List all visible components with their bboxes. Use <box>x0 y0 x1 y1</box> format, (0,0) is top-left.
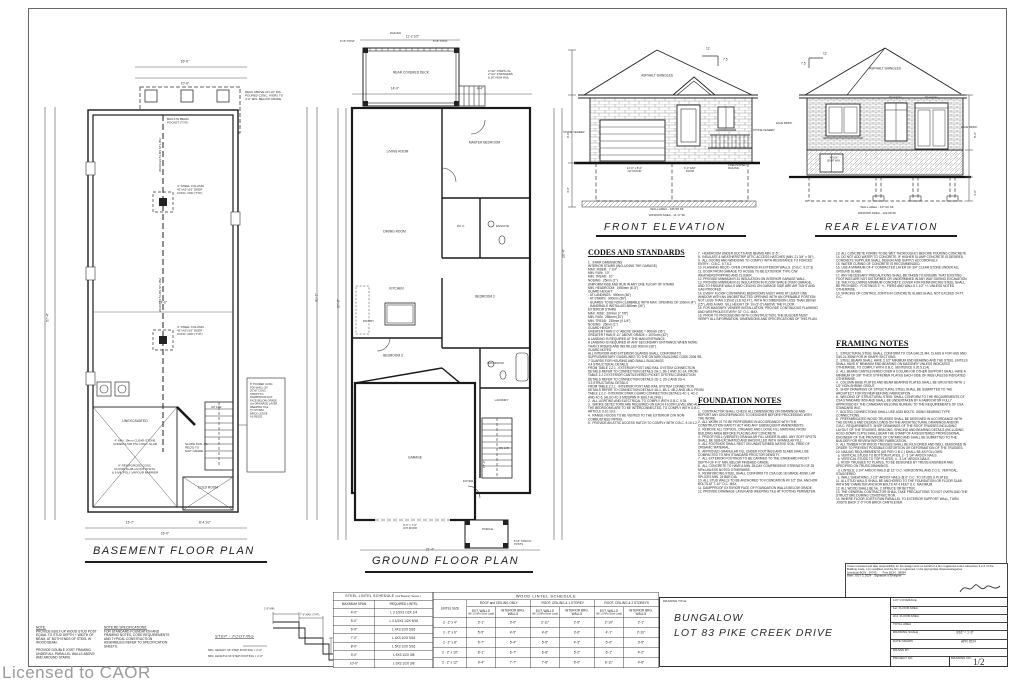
label-deck-steps: 2"x10" STEPS c/w 2"x10" STRINGERS & 36" … <box>488 70 548 80</box>
room-label-bath: BATHROOM <box>473 362 518 365</box>
basement-note-beam-pocket: BUILT-IN BEAM POCKET (TYP.) <box>167 118 222 125</box>
basement-label-up: UP 14R <box>211 406 221 410</box>
steel-table-subtitle: ( For Masonry Veneer ) <box>395 595 421 598</box>
wood-col-size: LINTEL SIZE <box>433 600 467 618</box>
table-row: 2 - 2" x 4"3'-1"3'-0"2'-11"2'-5"2'-10"2'… <box>433 618 659 628</box>
room-label-wic: W.I.C. <box>446 225 476 229</box>
cell-lintel: L 3 1/2X3 1/2X 1/4 <box>375 608 433 617</box>
date-drawn-value: APR 2024 <box>961 640 976 644</box>
rear-label-shingles: ASPHALT SHINGLES <box>850 67 920 71</box>
title-block: DRAWING TITLE BUNGALOW LOT 83 PIKE CREEK… <box>659 597 1008 667</box>
framing-notes-heading: FRAMING NOTES <box>836 338 909 348</box>
cell: 4'-2" <box>623 648 659 658</box>
rear-label-transom-2: TRANSOM <box>925 97 938 100</box>
row-total-area: TOTAL AREA <box>893 623 911 627</box>
cell: 4'-5" <box>495 628 530 638</box>
steel-col-span: MAXIMUM SPAN <box>333 600 375 608</box>
stamp-date-signature: Date: JULY 3, 2024 Signature of Designer… <box>847 575 1004 578</box>
step-footing-dim-1: 2'-0" MIN. <box>264 608 275 611</box>
drawing-sheet: { "sheet": { "licensed_to": "Licensed to… <box>0 0 1024 682</box>
wood-group-3: ROOF, CEILING & 2 STOREYS <box>595 600 659 607</box>
steel-lintel-table: STEEL LINTEL SCHEDULE ( For Masonry Vene… <box>333 592 433 668</box>
cell: 7'-7" <box>495 658 530 668</box>
cell: 9'-4" <box>467 658 496 668</box>
drawing-title-line1: BUNGALOW <box>674 612 743 624</box>
cell-size: 2 - 2" x 4" <box>433 618 467 628</box>
cell-lintel: L 4X3 1/2X 5/16 <box>375 625 433 634</box>
basement-side-note: 8" POURED CONC. FDN WALL ON 20"x8" CONC.… <box>250 383 284 419</box>
wood-lintel-table: WOOD LINTEL SCHEDULE LINTEL SIZE ROOF an… <box>433 592 659 668</box>
table-row: 2 - 2" x 6"5'-5"4'-5"4'-6"3'-6"4'-1"2'-1… <box>433 628 659 638</box>
rear-label-cladding-left: FACE BRICK <box>776 122 806 125</box>
front-elevation-title: FRONT ELEVATION <box>604 222 726 233</box>
note-body: PROVIDE BUILT-UP WOOD STUD POST EQUAL TO… <box>36 630 100 660</box>
rear-label-cladding-right: FACE BRICK <box>961 126 991 129</box>
row-first-floor-area: 1st. FLOOR AREA <box>893 607 918 611</box>
label-porch-posts: 6"x6" STRUCT. POSTS <box>514 540 559 546</box>
drawing-number-value: 1/2 <box>973 657 985 668</box>
basement-note-steel-column-1: 4" STEEL COLUMN 42"x42"x16" DEEP CONC. P… <box>177 185 242 196</box>
cell-size: 2 - 2" x 10" <box>433 648 467 658</box>
cell: 4'-8" <box>623 658 659 668</box>
rear-pitch-run: 12 <box>823 52 827 56</box>
basement-dim-top: 16'-0" <box>155 60 215 64</box>
codes-foundation-section: 7. HEADROOM UNDER DUCTS AND BEAMS MIN. 6… <box>698 252 818 564</box>
ground-dim-deck: 11'-2 1/2" <box>380 35 445 39</box>
basement-note-steel-column-2: 4" STEEL COLUMN 42"x42"x16" DEEP CONC. P… <box>177 326 242 337</box>
basement-label-cold-room: COLD ROOM <box>178 486 238 490</box>
cell-lintel: L 6X3 1/2X 3/8 <box>375 659 433 668</box>
cell-size: 2 - 2" x 12" <box>433 658 467 668</box>
room-label-garage: GARAGE <box>385 456 445 460</box>
foundation-notes-column: 1. CONTRACTOR SHALL CHECK ALL DIMENSIONS… <box>698 410 818 494</box>
front-label-entry-door: 3'-0" ENT. DOOR <box>670 167 710 173</box>
basement-beam-label-1: W310X22.5 LBS STL BM <box>159 138 163 172</box>
rear-label-transom-1: TRANSOM <box>889 97 902 100</box>
row-drawing-scale: DRAWING SCALE <box>893 631 918 635</box>
step-footing-note-1: MIN. HEIGHT OF STEP FOOTING = 2'-0" <box>208 649 262 652</box>
front-pitch-rise: 7.5 <box>723 58 728 62</box>
front-label-shingles: ASPHALT SHINGLES <box>622 74 692 78</box>
rear-elevation: ASPHALT SHINGLES 12 7.5 FACE BRICK FACE … <box>775 38 980 243</box>
sub-int-walls: INTERIOR BRG. WALLS <box>559 607 594 618</box>
ground-dim-top1: 14'-0" <box>365 87 425 91</box>
table-row: 7'-0"L 4X3 1/2X 5/16 <box>333 634 433 643</box>
front-window-area: WINDOW AREA - 11.17 SF <box>627 214 707 218</box>
step-footing-dim-2: 7'-0" MAX. (TYP.) <box>300 614 319 617</box>
drawing-title-line2: LOT 83 PIKE CREEK DRIVE <box>674 627 833 639</box>
cell: 3'-5" <box>623 638 659 648</box>
cell-size: 2 - 2" x 8" <box>433 638 467 648</box>
basement-label-unexcavated: UNEXCAVATED <box>95 420 175 424</box>
sub-ext-note: (W/ 1.0 kPa Snow Load) <box>532 613 558 616</box>
table-row: 8'-0"L 5X3 1/2X 5/16 <box>333 642 433 651</box>
cell: 6'-7" <box>495 648 530 658</box>
ground-dim-garage: 17'-4" <box>483 460 487 468</box>
cell-lintel: L 5X3 1/2X 3/8 <box>375 651 433 660</box>
step-footing-detail: STEP - FOOTING MIN. HEIGHT OF STEP FOOTI… <box>205 608 340 668</box>
room-label-porch: PORCH <box>465 528 510 532</box>
cell: 5'-5" <box>531 638 560 648</box>
table-row: 10'-0"L 6X3 1/2X 3/8 <box>333 659 433 668</box>
cell-span: 6'-0" <box>333 625 375 634</box>
room-label-laundry: LAUNDRY <box>479 399 524 402</box>
room-label-pantry: PANTRY <box>351 320 386 323</box>
cell: 5'-2" <box>559 648 594 658</box>
framing-notes-section: 13. ALL CONCRETE FORMS TO BE WET THOROUG… <box>836 252 968 564</box>
basement-beam-label-2: W310X22.5 LBS STL BM <box>159 278 163 312</box>
license-watermark: Licensed to CAOR <box>2 663 151 683</box>
drawing-title-label: DRAWING TITLE <box>663 600 686 604</box>
cell: 5'-4" <box>495 638 530 648</box>
cell: 2'-5" <box>559 618 594 628</box>
spec-note-body: FOR STANDARD FOUNDATION AND FRAMING NOTE… <box>104 630 170 649</box>
cell-size: 2 - 2" x 6" <box>433 628 467 638</box>
steel-table-title: STEEL LINTEL SCHEDULE <box>345 595 394 599</box>
codes-standards-column-2: 7. HEADROOM UNDER DUCTS AND BEAMS MIN. 6… <box>698 252 818 321</box>
basement-dim-right: 31'-1" <box>315 293 319 302</box>
row-lot-coverage: LOT COVERAGE <box>893 599 917 603</box>
ground-dim-bottom: 21'-4" <box>395 548 465 552</box>
room-label-ensuite: ENSUITE <box>485 225 520 229</box>
basement-dim-porch: 10'-0" <box>155 82 215 86</box>
basement-floor-plan: UNEXCAVATED 4" MIN. 19mm CLEAR STONE UND… <box>35 12 327 578</box>
specifications-note: NOTE RE SPECIFICATIONS: FOR STANDARD FOU… <box>104 626 170 666</box>
cell-span: 9'-0" <box>333 651 375 660</box>
room-label-living: LIVING ROOM <box>365 150 430 154</box>
builtup-post-note: NOTE: PROVIDE BUILT-UP WOOD STUD POST EQ… <box>36 626 100 666</box>
cell: 6'-8" <box>531 648 560 658</box>
room-label-bed3: BEDROOM 3 <box>363 354 423 358</box>
wood-group-1: ROOF and CEILING ONLY <box>467 600 531 607</box>
ground-floor-plan: REAR COVERED DECK 6"x6" POST 6"x6" POST … <box>330 28 570 576</box>
cell: 4'-1" <box>595 628 624 638</box>
rear-pitch-rise: 7.5 <box>801 62 806 66</box>
front-dim-h1: 9'-0" <box>567 132 571 138</box>
front-label-garage-door: 12'-0" x 8'-0" O/H DOOR <box>607 167 662 173</box>
foundation-notes-continued: 13. ALL CONCRETE FORMS TO BE WET THOROUG… <box>836 252 968 299</box>
ground-dim-left: 37'-0" <box>337 299 341 308</box>
sub-int-walls: INTERIOR BRG. WALLS <box>495 607 530 618</box>
cell: 3'-6" <box>559 628 594 638</box>
cell: 5'-0" <box>595 638 624 648</box>
codes-and-standards-section: CODES AND STANDARDS 1. STAIR DIMENSIONS … <box>588 248 706 564</box>
cell: 2'-11" <box>531 618 560 628</box>
rear-title-underline <box>815 235 957 237</box>
codes-standards-heading: CODES AND STANDARDS <box>588 248 685 257</box>
wood-lintel-schedule-table: WOOD LINTEL SCHEDULE LINTEL SIZE ROOF an… <box>433 592 659 668</box>
row-drawn-by: DRAWN BY <box>893 649 909 653</box>
basement-title-underline <box>85 561 267 563</box>
ground-dim-top2: 4'-4" <box>455 87 505 91</box>
foundation-notes-heading: FOUNDATION NOTES <box>698 396 781 405</box>
cell: 6'-7" <box>467 638 496 648</box>
front-pitch-run: 12 <box>706 47 710 51</box>
row-project-no: PROJECT NO. <box>893 657 913 661</box>
sub-ext-note: (W/ 1.0 kPa Snow Load) <box>596 613 622 616</box>
basement-dim-bottom-2: 8'-4 1/2" <box>175 521 235 525</box>
front-elevation: ASPHALT SHINGLES 12 7.5 STONE VENEER STO… <box>562 38 772 243</box>
rear-wall-area: WALL AREA - 417.00 SF <box>837 206 917 210</box>
cell-span: 8'-0" <box>333 642 375 651</box>
table-row: 2 - 2" x 8"6'-7"5'-4"5'-5"4'-3"5'-0"3'-5… <box>433 638 659 648</box>
label-stairs-dn: DN 14R <box>499 447 509 450</box>
table-row: 9'-0"L 5X3 1/2X 3/8 <box>333 651 433 660</box>
framing-notes-body: 1. STRUCTURAL STEEL SHALL CONFORM TO CSA… <box>836 352 968 505</box>
cell: 6'-0" <box>559 658 594 668</box>
rear-dim-h2: 4'-0" <box>974 190 978 196</box>
front-dim-h2: 4'-0" <box>567 187 571 193</box>
cell: 2'-10" <box>623 628 659 638</box>
basement-dim-bottom-3: 16'-0" <box>135 532 195 536</box>
basement-note-slab: 4" REINFORCED CONC. FLOOR SLAB c/w 6x6 W… <box>91 465 179 476</box>
ground-plan-title: GROUND FLOOR PLAN <box>372 555 519 567</box>
table-row: 2 - 2" x 10"8'-1"6'-7"6'-8"5'-2"6'-1"4'-… <box>433 648 659 658</box>
rear-elevation-title: REAR ELEVATION <box>825 222 938 233</box>
cell: 6'-11" <box>595 658 624 668</box>
table-row: 2 - 2" x 12"9'-4"7'-7"7'-8"6'-0"6'-11"4'… <box>433 658 659 668</box>
designer-signature <box>958 580 1002 596</box>
row-date-drawn: DATE DRAWN <box>893 640 913 644</box>
codes-standards-column-1: 1. STAIR DIMENSIONS INTERIOR STAIRS (INC… <box>588 261 704 425</box>
row-second-floor-area: 2nd. FLOOR AREA <box>893 615 919 619</box>
cell-span: 4'-0" <box>333 608 375 617</box>
cell: 4'-6" <box>531 628 560 638</box>
steel-lintel-schedule-table: STEEL LINTEL SCHEDULE ( For Masonry Vene… <box>333 592 433 668</box>
basement-dim-mid: 14'-0" <box>133 301 193 305</box>
ground-title-underline <box>365 571 533 573</box>
room-label-dining: DINING ROOM <box>362 230 427 234</box>
label-deck-post-1: 6"x6" POST <box>340 40 355 43</box>
cell: 4'-3" <box>559 638 594 648</box>
cell-lintel: L 3 1/2X3 1/2X 5/16 <box>375 617 433 626</box>
room-label-foyer: FOYER <box>448 480 488 484</box>
sub-int-walls: INTERIOR BRG. WALLS <box>623 607 659 618</box>
basement-note-stone: 4" MIN. 19mm CLEAR STONE UNDER 3,500 PSI… <box>94 440 176 447</box>
ground-dim-right: 20'-4" <box>562 249 566 258</box>
basement-plan-title: BASEMENT FLOOR PLAN <box>93 545 255 557</box>
table-row: 6'-0"L 4X3 1/2X 5/16 <box>333 625 433 634</box>
cell: 8'-1" <box>467 648 496 658</box>
room-label-master: MASTER BEDROOM <box>452 141 517 145</box>
cell-lintel: L 5X3 1/2X 5/16 <box>375 642 433 651</box>
basement-dim-bottom-1: 15'-7" <box>100 521 160 525</box>
rear-label-bsmt-window: 48"x24" BSMT WIN. <box>817 157 851 163</box>
cell-span: 7'-0" <box>333 634 375 643</box>
label-deck-post-2: 6"x6" POST <box>433 40 448 43</box>
wood-table-title: WOOD LINTEL SCHEDULE <box>433 592 659 600</box>
table-row: 5'-0"L 3 1/2X3 1/2X 5/16 <box>333 617 433 626</box>
rear-dim-h1: 8'-0" <box>974 132 978 138</box>
basement-note-slope: SLOPE FDN. AS REQ'D TO SUIT GRADE <box>185 443 240 454</box>
title-block-info: LOT COVERAGE 1st. FLOOR AREA 2nd. FLOOR … <box>890 598 1008 666</box>
front-wall-area: WALL AREA - 345.58 SF <box>627 208 707 212</box>
basement-dim-left: 57'-4" <box>46 313 50 322</box>
cell-span: 5'-0" <box>333 617 375 626</box>
basement-note-deck-piers: DECK ABOVE ON 10" DIA. POURED CONC. PIER… <box>245 91 325 102</box>
front-label-railing: PREFINISHED RAILING <box>728 164 768 170</box>
cell: 2'-1" <box>623 618 659 628</box>
drawing-scale-value: 3/16" = 1'-0" <box>956 631 974 635</box>
cell: 3'-1" <box>467 618 496 628</box>
label-garage-door: 9'-0" x 7'-0" O/H DOOR <box>375 524 445 530</box>
step-footing-note-2: MIN. LENGTH OF STEP FOOTING = 2'-0" <box>208 655 263 658</box>
front-title-underline <box>596 235 746 237</box>
cell-lintel: L 4X3 1/2X 5/16 <box>375 634 433 643</box>
cell: 5'-5" <box>467 628 496 638</box>
wood-group-2: ROOF, CEILING & 1 STOREY <box>531 600 595 607</box>
room-label-deck: REAR COVERED DECK <box>371 71 451 75</box>
cell-span: 10'-0" <box>333 659 375 668</box>
step-footing-title: STEP - FOOTING <box>215 634 254 639</box>
table-row: 4'-0"L 3 1/2X3 1/2X 1/4 <box>333 608 433 617</box>
designer-stamp: I have reviewed and take responsibility … <box>845 563 1008 599</box>
sub-ext-note: (W/ 1.0 kPa Snow Load) <box>468 613 494 616</box>
steel-col-lintel: REQUIRED LINTEL <box>375 600 433 608</box>
row-drawing-no: DRAWING NO. <box>951 657 972 661</box>
cell: 2'-10" <box>595 618 624 628</box>
room-label-bed2: BEDROOM 2 <box>455 295 515 299</box>
cell: 3'-0" <box>495 618 530 628</box>
rear-window-area: WINDOW AREA - 129.08 SF <box>837 212 917 216</box>
room-label-kitchen: KITCHEN <box>369 287 424 291</box>
cell: 6'-1" <box>595 648 624 658</box>
cell: 7'-8" <box>531 658 560 668</box>
